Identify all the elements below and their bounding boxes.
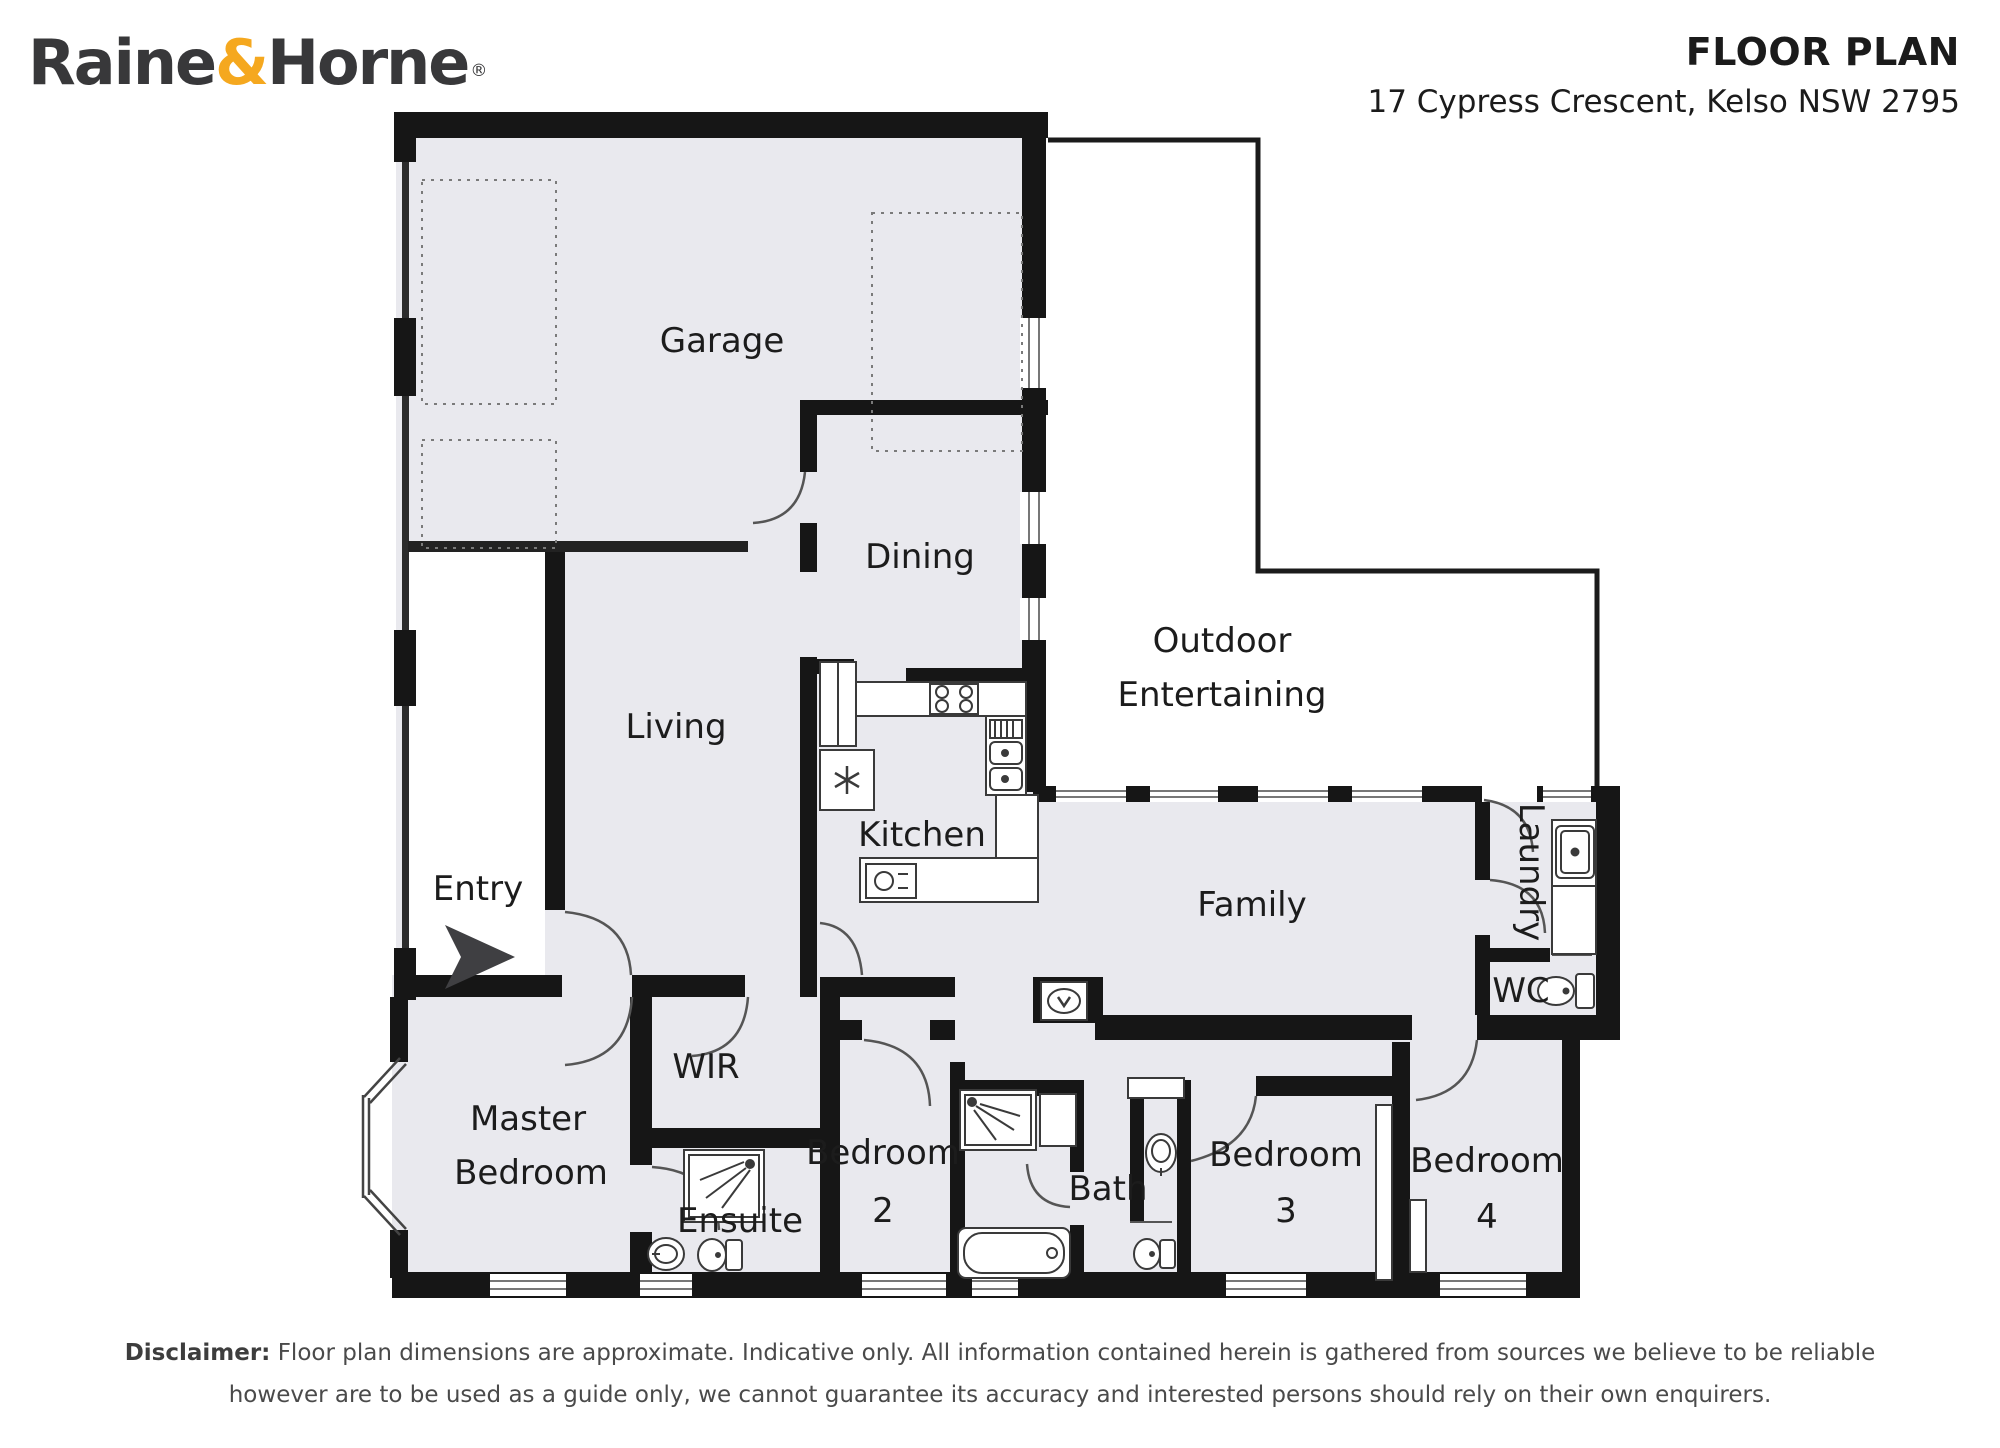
room-label-dining: Dining bbox=[865, 537, 975, 577]
bedroom3-robe bbox=[1128, 1078, 1184, 1098]
room-label-bedroom3-2: 3 bbox=[1275, 1191, 1297, 1231]
room-label-wc: WC bbox=[1492, 971, 1549, 1011]
kitchen-bench-top bbox=[856, 682, 1026, 716]
disclaimer-line-2: however are to be used as a guide only, … bbox=[0, 1374, 2000, 1416]
laundry-external-door-gap bbox=[1482, 786, 1537, 802]
room-label-master-1: Master bbox=[470, 1099, 586, 1139]
cooktop-icon bbox=[930, 684, 978, 714]
fridge bbox=[820, 750, 874, 810]
room-label-wir: WIR bbox=[672, 1047, 739, 1087]
room-label-bedroom2-1: Bedroom bbox=[806, 1133, 960, 1173]
disclaimer: Disclaimer: Floor plan dimensions are ap… bbox=[0, 1332, 2000, 1416]
dining-window-1 bbox=[1020, 492, 1048, 544]
garage-east-window bbox=[1020, 318, 1048, 388]
ensuite-basin-icon bbox=[648, 1238, 684, 1270]
room-label-ensuite: Ensuite bbox=[677, 1201, 803, 1241]
room-label-entry: Entry bbox=[433, 869, 523, 909]
room-label-bedroom4-1: Bedroom bbox=[1410, 1141, 1564, 1181]
pantry bbox=[820, 662, 856, 746]
room-label-family: Family bbox=[1197, 885, 1306, 925]
small-wc-toilet-icon bbox=[1134, 1239, 1175, 1269]
vent-box bbox=[1041, 982, 1087, 1020]
dishwasher-icon bbox=[866, 864, 916, 898]
disclaimer-line-1: Disclaimer: Floor plan dimensions are ap… bbox=[0, 1332, 2000, 1374]
room-label-outdoor-2: Entertaining bbox=[1118, 675, 1327, 715]
bath-shower bbox=[960, 1090, 1036, 1150]
bath-vanity bbox=[1040, 1094, 1076, 1146]
disclaimer-label: Disclaimer: bbox=[125, 1340, 271, 1366]
entry-porch bbox=[408, 552, 545, 975]
bedroom3-robe-side bbox=[1376, 1105, 1392, 1280]
room-label-bedroom3-1: Bedroom bbox=[1209, 1135, 1363, 1175]
room-label-bedroom4-2: 4 bbox=[1476, 1197, 1498, 1237]
room-label-garage: Garage bbox=[660, 321, 785, 361]
bedroom4-robe bbox=[1410, 1200, 1426, 1272]
floor-plan-canvas: Garage Dining Living Entry Kitchen Outdo… bbox=[0, 0, 2000, 1448]
dining-window-2 bbox=[1020, 598, 1048, 640]
ensuite-toilet-icon bbox=[698, 1239, 742, 1271]
room-label-kitchen: Kitchen bbox=[858, 815, 986, 855]
laundry-tub bbox=[1552, 820, 1596, 954]
room-label-bath: Bath bbox=[1068, 1169, 1147, 1209]
room-label-outdoor-1: Outdoor bbox=[1153, 621, 1292, 661]
room-label-bedroom2-2: 2 bbox=[872, 1191, 894, 1231]
bathtub-icon bbox=[958, 1228, 1070, 1278]
room-label-living: Living bbox=[625, 707, 726, 747]
room-label-laundry: Laundry bbox=[1511, 803, 1551, 942]
room-label-master-2: Bedroom bbox=[454, 1153, 608, 1193]
kitchen-sink bbox=[986, 716, 1026, 795]
